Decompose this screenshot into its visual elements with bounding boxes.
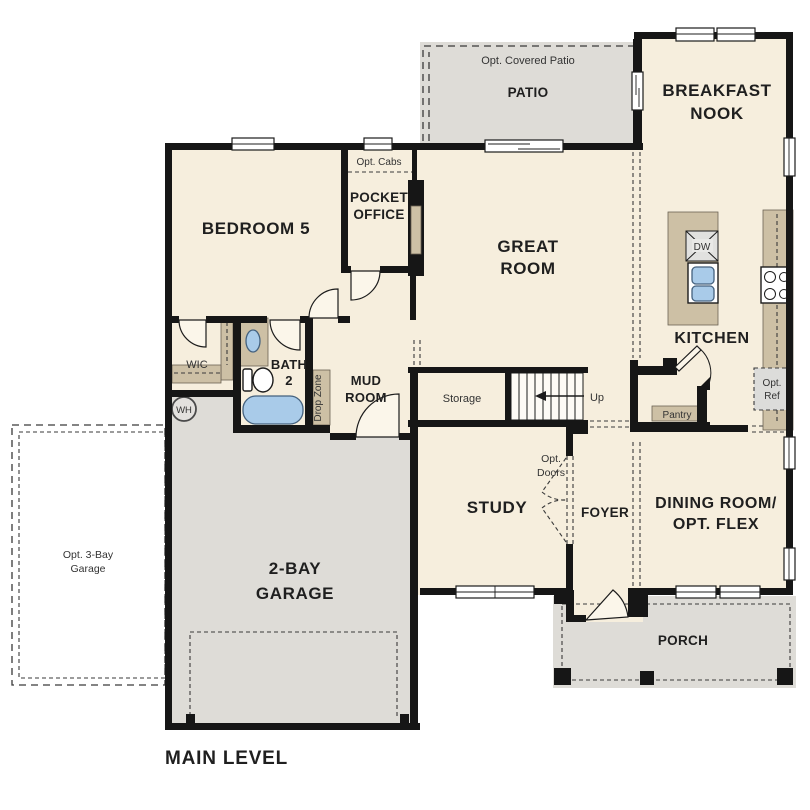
foyer-label: FOYER <box>581 505 629 520</box>
pocket-office-label-1: POCKET <box>350 190 409 205</box>
pocket-office-label-2: OFFICE <box>353 207 404 222</box>
opt-cabs-label: Opt. Cabs <box>356 157 401 168</box>
porch-post-nw <box>554 590 571 604</box>
great-room-label-2: ROOM <box>500 259 555 278</box>
breakfast-side-window <box>784 138 795 176</box>
storage-label: Storage <box>443 393 482 405</box>
breakfast-nook-label-1: BREAKFAST <box>662 81 771 100</box>
opt-ref-label-2: Ref <box>764 391 780 402</box>
opt-3bay-label-1: Opt. 3-Bay <box>63 549 114 561</box>
water-heater-label: WH <box>176 405 192 416</box>
breakfast-slider-door <box>632 72 643 110</box>
study-label: STUDY <box>467 498 528 517</box>
garage-area <box>172 393 412 723</box>
opt-ref-label-1: Opt. <box>763 378 782 389</box>
opt-covered-patio-label: Opt. Covered Patio <box>481 55 575 67</box>
mud-room-label-1: MUD <box>351 373 382 388</box>
patio-slider-door <box>485 140 563 152</box>
floor-plan: Opt. Covered Patio PATIO BREAKFAST NOOK … <box>0 0 810 810</box>
dishwasher-label: DW <box>694 242 711 253</box>
porch-post-mid <box>640 671 654 685</box>
dining-label-1: DINING ROOM/ <box>655 495 777 512</box>
stairs <box>511 373 584 420</box>
opt-doors-label-1: Opt. <box>541 453 561 465</box>
porch-post-se <box>777 668 793 685</box>
kitchen-sink-basin-top <box>692 267 714 284</box>
garage-label-1: 2-BAY <box>269 559 322 578</box>
bath2-label-2: 2 <box>285 373 293 388</box>
bedroom5-label: BEDROOM 5 <box>202 219 310 238</box>
floor-plan-canvas: Opt. Covered Patio PATIO BREAKFAST NOOK … <box>0 0 810 810</box>
bath2-sink <box>246 330 260 352</box>
dining-label-2: OPT. FLEX <box>673 516 759 533</box>
patio-label: PATIO <box>508 85 549 100</box>
porch-label: PORCH <box>658 633 708 648</box>
pantry-label: Pantry <box>663 410 692 421</box>
porch-post-sw <box>554 668 571 685</box>
breakfast-nook-label-2: NOOK <box>690 104 744 123</box>
stairs-up-label: Up <box>590 392 604 404</box>
kitchen-label: KITCHEN <box>674 330 749 347</box>
bathtub <box>243 396 303 424</box>
dining-side-window-bottom <box>784 548 795 580</box>
breakfast-window-left <box>676 28 714 41</box>
kitchen-sink-basin-bottom <box>692 286 714 301</box>
toilet-tank <box>243 369 252 391</box>
opt-ref-box <box>754 368 790 410</box>
plan-title: MAIN LEVEL <box>165 748 288 769</box>
bath2-label-1: BATH <box>271 357 307 372</box>
great-room-label-1: GREAT <box>497 237 558 256</box>
wic-label: WIC <box>186 359 207 371</box>
opt-3bay-label-2: Garage <box>70 563 105 575</box>
drop-zone-label: Drop Zone <box>313 374 324 422</box>
garage-label-2: GARAGE <box>256 584 334 603</box>
dining-side-window-top <box>784 437 795 469</box>
breakfast-window-right <box>717 28 755 41</box>
opt-doors-label-2: Doors <box>537 467 565 479</box>
mud-room-label-2: ROOM <box>345 390 387 405</box>
